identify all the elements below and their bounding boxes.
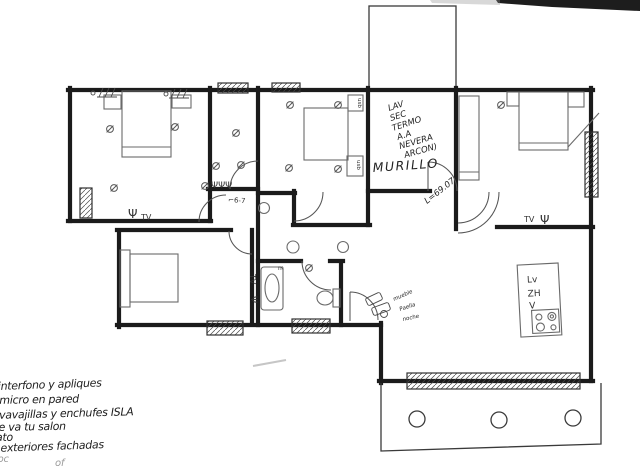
outlet-icon [498, 102, 505, 109]
outlet-icon [172, 124, 179, 131]
patio-outline [369, 6, 456, 90]
wall-bedroom2-notch [258, 191, 370, 225]
terrace [381, 383, 601, 451]
window-bedroom3-right [585, 132, 598, 197]
nightstand [172, 95, 191, 108]
usb-label: usb [356, 98, 362, 108]
bedroom-1: Ψ TV [91, 88, 191, 222]
bed [130, 254, 178, 302]
burner [536, 314, 542, 320]
kitchen-note: mueble [392, 289, 414, 303]
door-bedroom3 [458, 192, 489, 223]
note-line: interfono y apliques [0, 376, 102, 393]
burner [536, 323, 544, 331]
toilet-bowl [317, 291, 333, 305]
tv-antenna-icon: Ψ [540, 213, 549, 227]
terrace-column [491, 412, 507, 428]
tv-antenna-icon: Ψ [128, 207, 137, 221]
bedroom-3: TV Ψ [459, 92, 599, 227]
outlet-icon [202, 183, 209, 190]
cooktop [532, 309, 560, 333]
door-bedroom4 [229, 231, 252, 254]
nightstand [507, 92, 519, 106]
sink-basin [265, 274, 279, 302]
utility-room: LAV SEC TERMO A.A NEVERA ARCON) MURILLO [372, 99, 439, 175]
floorplan-svg: Ψ TV ΨΨΨ ⌐6-7 usb usb LAV SEC TERMO A.A … [0, 0, 640, 467]
entry-furniture-sketch: mueble Paella noche [365, 289, 420, 323]
terrace-column [409, 411, 425, 427]
tv-label: TV [248, 273, 257, 285]
outlet-icon [286, 165, 293, 172]
outlet-icon [335, 102, 342, 109]
nightstand [568, 92, 584, 107]
hall-symbol: ⌐6-7 [228, 196, 246, 205]
door-bedroom2 [294, 192, 323, 221]
note-line: lavavajillas y enchufes ISLA [0, 405, 134, 422]
tv-label: TV [140, 213, 152, 222]
tv-label: TV [523, 215, 535, 224]
bedroom-4: TV Ψ [120, 250, 258, 307]
outlet-icon [287, 102, 294, 109]
bed [519, 92, 568, 150]
note-faint: of [55, 458, 66, 467]
island-label-zh: ZH [527, 289, 540, 300]
outlet-icon [233, 130, 240, 137]
margin-notes: interfono y apliques y micro en pared la… [0, 376, 134, 467]
walls [68, 88, 593, 383]
burner [548, 312, 556, 320]
ceiling-light [259, 203, 270, 214]
kitchen-island: Lv ZH V [517, 263, 562, 337]
note-faint: toc [0, 454, 9, 465]
mirror-label: m [278, 265, 284, 272]
door-kitchen-entry [350, 292, 378, 321]
ceiling-lights [259, 203, 349, 254]
ceiling-light [287, 241, 299, 253]
outlet-icon [213, 163, 220, 170]
burner [551, 325, 556, 330]
outlet-icon [107, 126, 114, 133]
ceiling-light [338, 242, 349, 253]
wardrobe [459, 96, 479, 180]
kitchen-note: Paella [399, 302, 417, 313]
kitchen-note: noche [402, 313, 420, 322]
window-closet-top [218, 83, 248, 93]
kitchen: Lv ZH V mueble Paella noche [365, 263, 562, 337]
bedroom-2: usb usb [304, 95, 363, 176]
door-living-large [458, 192, 499, 233]
floorplan-scan: Ψ TV ΨΨΨ ⌐6-7 usb usb LAV SEC TERMO A.A … [0, 0, 640, 467]
headboard [120, 250, 130, 307]
outlet-icon [335, 166, 342, 173]
bathroom: m [261, 265, 340, 310]
tv-antenna-icon: Ψ [248, 296, 258, 303]
note-line: s exteriores fachadas [0, 438, 105, 455]
usb-label: usb [355, 160, 361, 170]
murillo-scrawl: MURILLO [372, 155, 439, 175]
island-label-lv: Lv [527, 275, 539, 286]
closet-room: ΨΨΨ ⌐6-7 [211, 181, 246, 205]
windows [80, 83, 598, 389]
outlet-icon [111, 185, 118, 192]
switch-symbols: ΨΨΨ [211, 181, 232, 191]
door-hall [199, 195, 226, 222]
window-bedroom1-left [80, 188, 92, 218]
outlet-icon [306, 265, 313, 272]
window-bathroom-bottom [292, 319, 330, 333]
window-kitchen-slider [407, 373, 580, 389]
terrace-column [565, 410, 581, 426]
bed [304, 108, 348, 160]
note-line: y micro en pared [0, 392, 80, 407]
window-bedroom4-bottom [207, 321, 243, 335]
burner [550, 315, 553, 318]
window-bedroom2-top [272, 83, 300, 92]
